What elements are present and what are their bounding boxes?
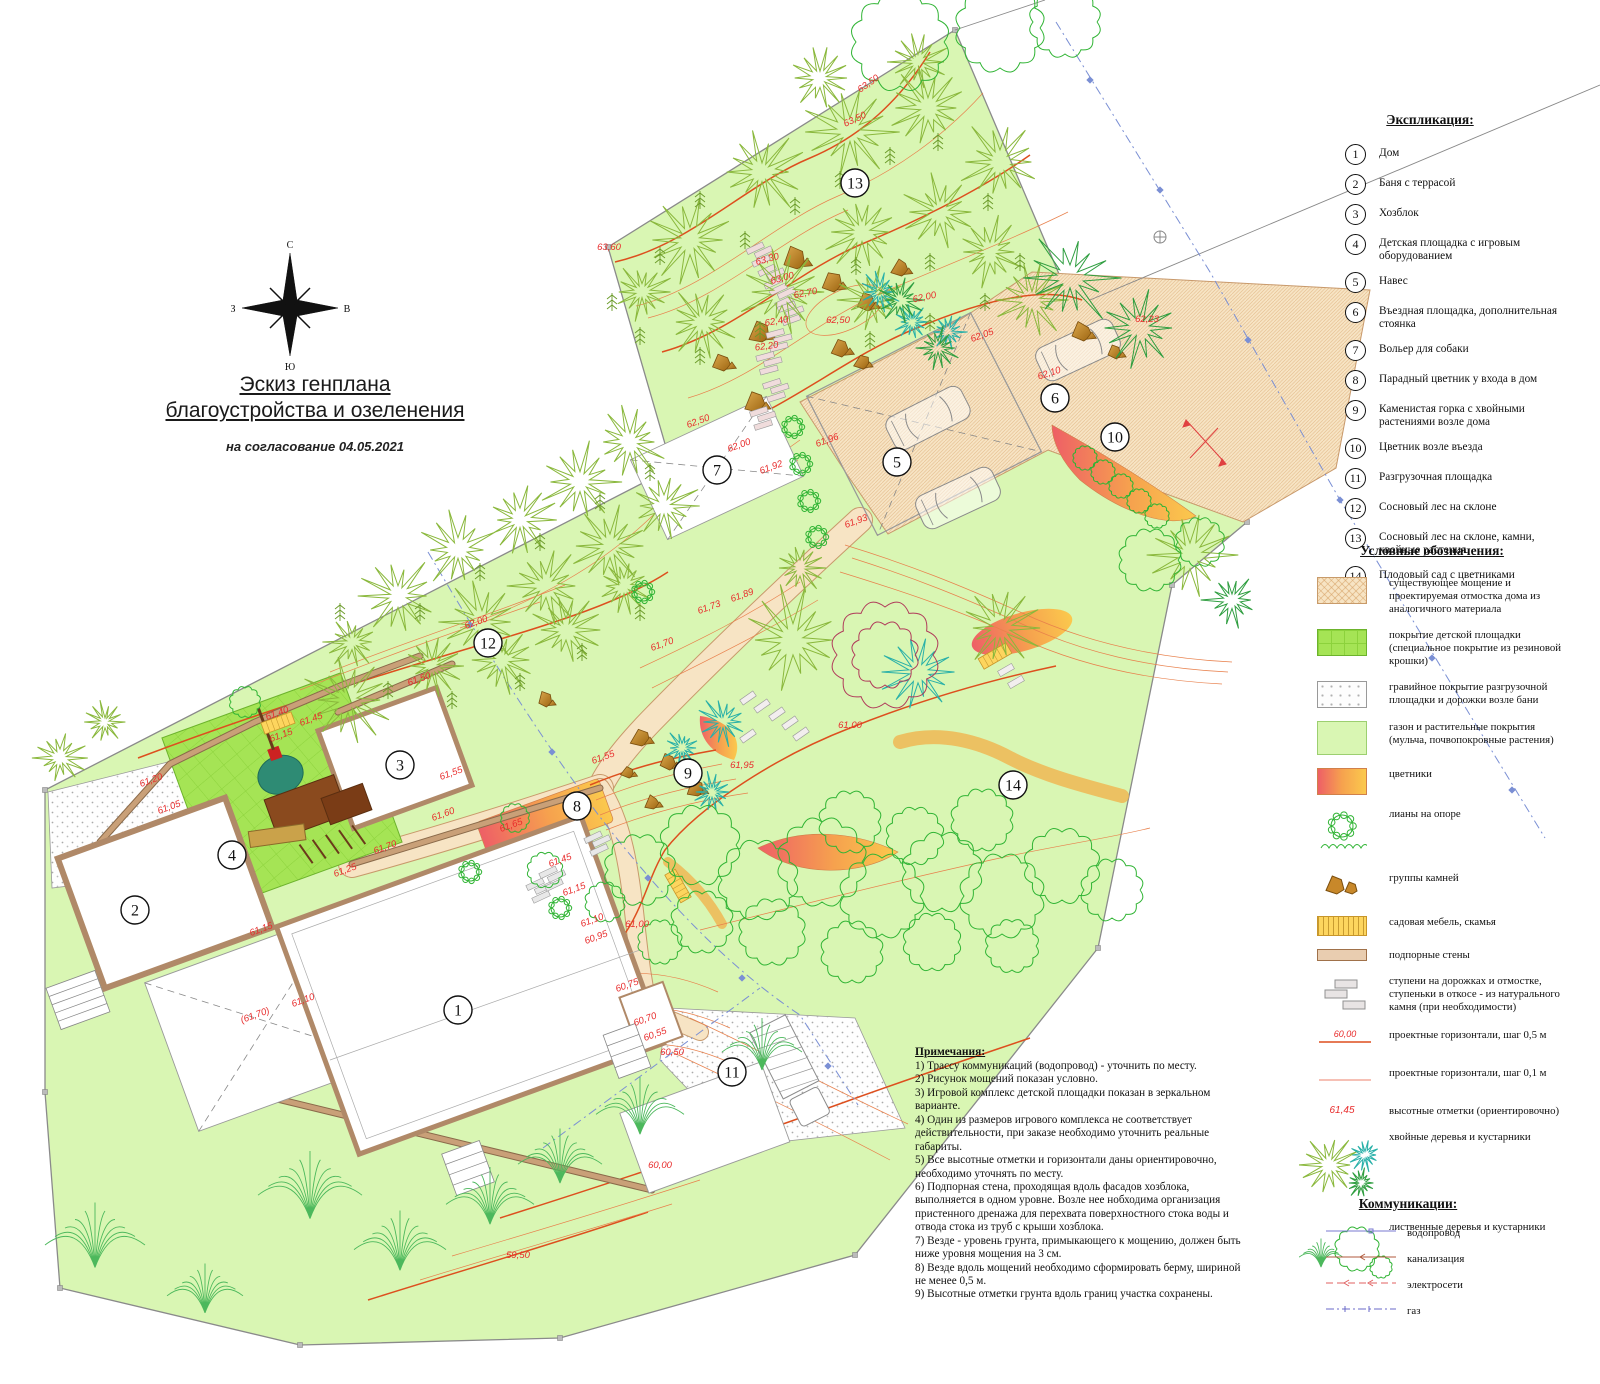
page-subtitle: на согласование 04.05.2021 [150,439,480,454]
plan-marker-8: 8 [563,792,591,820]
explication-item-7: 7Вольер для собаки [1300,340,1560,361]
explication-item-label: Дом [1379,144,1399,160]
communication-item-water: водопровод [1288,1224,1528,1242]
symbol-item-label: проектные горизонтали, шаг 0,5 м [1389,1029,1564,1042]
note-line: 6) Подпорная стена, проходящая вдоль фас… [915,1181,1251,1235]
gas-line-icon [1325,1302,1397,1320]
liana-swatch-icon [1317,808,1367,859]
explication-item-10: 10Цветник возле въезда [1300,438,1560,459]
symbol-item-paving: существующее мощение и проектируемая отм… [1292,577,1572,616]
compass-label-e: В [344,304,351,315]
communications-items: водопроводканализацияэлектросетигаз [1288,1224,1528,1320]
plan-marker-12: 12 [474,629,502,657]
symbol-item-label: хвойные деревья и кустарники [1389,1131,1564,1144]
symbol-item-label: садовая мебель, скамья [1389,916,1564,929]
symbols-items: существующее мощение и проектируемая отм… [1292,577,1572,1290]
communication-item-label: водопровод [1407,1227,1460,1239]
notes-block: Примечания: 1) Трассу коммуникаций (водо… [915,1046,1251,1302]
plan-marker-11: 11 [718,1058,746,1086]
page-title-line2: благоустройства и озеленения [150,398,480,424]
explication-item-label: Сосновый лес на склоне [1379,498,1496,514]
svg-text:5: 5 [893,455,901,472]
svg-text:1: 1 [454,1003,462,1020]
explication-item-12: 12Сосновый лес на склоне [1300,498,1560,519]
explication-item-label: Хозблок [1379,204,1419,220]
plan-marker-3: 3 [386,751,414,779]
symbol-item-label: ступени на дорожках и отмостке, ступеньк… [1389,975,1564,1014]
symbol-item-label: высотные отметки (ориентировочно) [1389,1105,1564,1118]
communication-item-label: канализация [1407,1253,1464,1265]
title-block: Эскиз генплана благоустройства и озелене… [150,372,480,454]
explication-item-label: Баня с террасой [1379,174,1455,190]
symbol-item-flowers: цветники [1292,768,1572,795]
explication-number-badge: 6 [1345,302,1366,323]
contour05-swatch-icon: 60,00 [1317,1029,1367,1054]
explication-item-label: Парадный цветник у входа в дом [1379,370,1537,386]
svg-text:13: 13 [847,176,863,193]
communication-item-gas: газ [1288,1302,1528,1320]
explication-number-badge: 2 [1345,174,1366,195]
notes-header: Примечания: [915,1046,1251,1058]
svg-text:14: 14 [1005,778,1021,795]
explication-number-badge: 5 [1345,272,1366,293]
note-line: 5) Все высотные отметки и горизонтали да… [915,1154,1251,1181]
explication-item-label: Вольер для собаки [1379,340,1469,356]
elevation-label: 60,00 [648,1160,672,1171]
elevation-label: 59,50 [506,1250,530,1261]
plan-marker-6: 6 [1041,384,1069,412]
symbol-item-label: подпорные стены [1389,949,1564,962]
symbol-item-label: газон и растительные покрытия (мульча, п… [1389,721,1564,747]
contour01-swatch-icon [1317,1067,1367,1092]
sewer-line-icon [1325,1250,1397,1268]
communications-header: Коммуникации: [1288,1196,1528,1212]
explication-item-label: Разгрузочная площадка [1379,468,1492,484]
svg-text:2: 2 [131,903,139,920]
compass-label-n: С [287,240,294,251]
symbol-item-label: группы камней [1389,872,1564,885]
explication-number-badge: 4 [1345,234,1366,255]
electric-line-icon [1325,1276,1397,1294]
note-line: 3) Игровой комплекс детской площадки пок… [915,1087,1251,1114]
explication-item-label: Детская площадка с игровым оборудованием [1379,234,1560,263]
compass-label-w: З [230,304,235,315]
plan-marker-7: 7 [703,456,731,484]
svg-text:4: 4 [228,848,236,865]
elevation-label: 61,00 [625,919,649,930]
explication-item-label: Въездная площадка, дополнительная стоянк… [1379,302,1560,331]
page-title-line1: Эскиз генплана [150,372,480,398]
communications-legend: Коммуникации: водопроводканализацияэлект… [1288,1196,1528,1328]
svg-text:8: 8 [573,799,581,816]
elevation-label: 61,95 [730,760,754,771]
elevation-label: 62,23 [1135,314,1159,325]
explication-item-9: 9Каменистая горка с хвойными растениями … [1300,400,1560,429]
flowers-swatch-icon [1317,768,1367,795]
plan-marker-14: 14 [999,771,1027,799]
symbol-item-spot: 61,45высотные отметки (ориентировочно) [1292,1105,1572,1118]
explication-number-badge: 11 [1345,468,1366,489]
compass-rose: СВЗЮ [230,240,350,373]
svg-text:10: 10 [1107,430,1123,447]
explication-item-5: 5Навес [1300,272,1560,293]
symbol-item-playground: покрытие детской площадки (специальное п… [1292,629,1572,668]
communication-item-sewer: канализация [1288,1250,1528,1268]
note-line: 8) Везде вдоль мощений необходимо сформи… [915,1262,1251,1289]
explication-number-badge: 8 [1345,370,1366,391]
symbol-item-label: существующее мощение и проектируемая отм… [1389,577,1564,616]
water-line-icon [1325,1224,1397,1242]
explication-number-badge: 12 [1345,498,1366,519]
explication-item-3: 3Хозблок [1300,204,1560,225]
plan-marker-9: 9 [674,759,702,787]
explication-item-2: 2Баня с террасой [1300,174,1560,195]
explication-item-8: 8Парадный цветник у входа в дом [1300,370,1560,391]
road-node-symbol [1154,231,1166,243]
symbol-item-steps: ступени на дорожках и отмостке, ступеньк… [1292,975,1572,1016]
pine-sapling-icon [607,293,617,311]
paving-swatch-icon [1317,577,1367,604]
plan-marker-10: 10 [1101,423,1129,451]
spot-swatch-icon: 61,45 [1317,1105,1367,1116]
bench-swatch-icon [1317,916,1367,936]
symbol-item-rocks: группы камней [1292,872,1572,903]
svg-text:7: 7 [713,463,721,480]
plan-marker-4: 4 [218,841,246,869]
explication-number-badge: 3 [1345,204,1366,225]
pine-sapling-icon [335,603,345,621]
elevation-label: 63,60 [597,242,621,253]
explication-item-label: Цветник возле въезда [1379,438,1483,454]
symbol-item-label: покрытие детской площадки (специальное п… [1389,629,1564,668]
note-line: 2) Рисунок мощений показан условно. [915,1073,1251,1086]
symbol-item-gravel: гравийное покрытие разгрузочной площадки… [1292,681,1572,708]
plan-marker-1: 1 [444,996,472,1024]
wall-swatch-icon [1317,949,1367,961]
symbols-legend: Условные обозначения: существующее мощен… [1292,543,1572,1303]
plan-marker-5: 5 [883,448,911,476]
notes-lines: 1) Трассу коммуникаций (водопровод) - ут… [915,1060,1251,1302]
explication-header: Экспликация: [1300,112,1560,128]
explication-item-6: 6Въездная площадка, дополнительная стоян… [1300,302,1560,331]
explication-number-badge: 7 [1345,340,1366,361]
symbol-item-label: гравийное покрытие разгрузочной площадки… [1389,681,1564,707]
note-line: 1) Трассу коммуникаций (водопровод) - ут… [915,1060,1251,1073]
explication-legend: Экспликация: 1Дом2Баня с террасой3Хозбло… [1300,112,1560,596]
symbol-item-lawn: газон и растительные покрытия (мульча, п… [1292,721,1572,755]
symbols-header: Условные обозначения: [1292,543,1572,559]
svg-text:60,00: 60,00 [1334,1029,1357,1039]
rocks-swatch-icon [1317,872,1367,903]
svg-text:6: 6 [1051,391,1059,408]
plan-marker-13: 13 [841,169,869,197]
communication-item-label: электросети [1407,1279,1463,1291]
symbol-item-label: проектные горизонтали, шаг 0,1 м [1389,1067,1564,1080]
symbol-item-wall: подпорные стены [1292,949,1572,962]
explication-number-badge: 1 [1345,144,1366,165]
symbol-item-bench: садовая мебель, скамья [1292,916,1572,936]
symbol-item-contour05: 60,00проектные горизонтали, шаг 0,5 м [1292,1029,1572,1054]
playground-swatch-icon [1317,629,1367,656]
note-line: 4) Один из размеров игрового комплекса н… [915,1114,1251,1154]
explication-items: 1Дом2Баня с террасой3Хозблок4Детская пло… [1300,144,1560,587]
svg-text:3: 3 [396,758,404,775]
communication-item-label: газ [1407,1305,1421,1317]
explication-number-badge: 9 [1345,400,1366,421]
symbol-item-label: лианы на опоре [1389,808,1564,821]
gravel-swatch-icon [1317,681,1367,708]
symbol-item-label: цветники [1389,768,1564,781]
plan-marker-2: 2 [121,896,149,924]
explication-item-4: 4Детская площадка с игровым оборудование… [1300,234,1560,263]
explication-item-label: Навес [1379,272,1408,288]
steps-swatch-icon [1317,975,1367,1016]
elevation-label: 61,00 [838,720,862,731]
elevation-label: 60,50 [660,1047,684,1058]
explication-item-11: 11Разгрузочная площадка [1300,468,1560,489]
explication-item-1: 1Дом [1300,144,1560,165]
lawn-swatch-icon [1317,721,1367,755]
explication-number-badge: 10 [1345,438,1366,459]
elevation-label: 62,50 [826,315,850,326]
symbol-item-contour01: проектные горизонтали, шаг 0,1 м [1292,1067,1572,1092]
explication-item-label: Каменистая горка с хвойными растениями в… [1379,400,1560,429]
svg-text:9: 9 [684,766,692,783]
svg-text:12: 12 [480,636,496,653]
svg-text:11: 11 [724,1065,739,1082]
note-line: 7) Везде - уровень грунта, примыкающего … [915,1235,1251,1262]
communication-item-electric: электросети [1288,1276,1528,1294]
note-line: 9) Высотные отметки грунта вдоль границ … [915,1288,1251,1301]
symbol-item-liana: лианы на опоре [1292,808,1572,859]
genplan-sheet: СВЗЮ123456789101112131463,5063,5063,6063… [0,0,1600,1384]
